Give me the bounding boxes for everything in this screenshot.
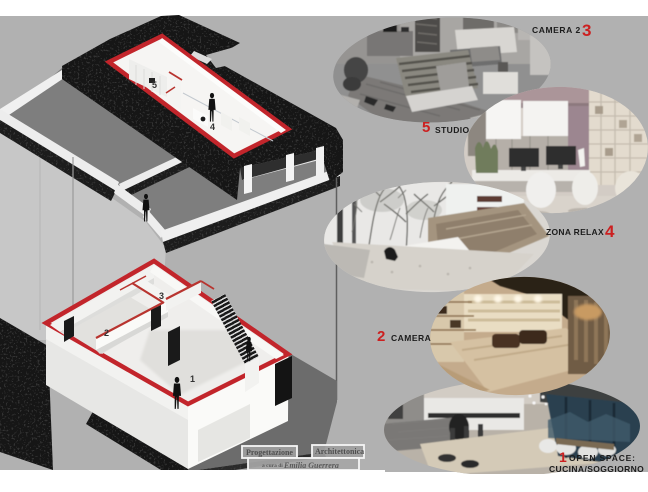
svg-text:4: 4 — [605, 222, 615, 241]
svg-text:CUCINA/SOGGIORNO: CUCINA/SOGGIORNO — [549, 464, 644, 474]
svg-text:Architettonica: Architettonica — [315, 447, 364, 456]
svg-text:1: 1 — [190, 374, 195, 384]
svg-text:3: 3 — [582, 21, 591, 40]
svg-text:5: 5 — [152, 80, 157, 90]
svg-text:2: 2 — [377, 328, 385, 345]
svg-text:4: 4 — [210, 122, 215, 132]
svg-text:CAMERA: CAMERA — [391, 333, 431, 343]
svg-text:ZONA RELAX: ZONA RELAX — [546, 227, 604, 237]
svg-text:3: 3 — [159, 291, 164, 301]
svg-text:Emilia Guerrera: Emilia Guerrera — [283, 461, 339, 470]
svg-text:2: 2 — [104, 328, 109, 338]
svg-text:5: 5 — [422, 119, 430, 136]
svg-text:1: 1 — [559, 449, 567, 465]
svg-text:CAMERA 2: CAMERA 2 — [532, 25, 581, 35]
svg-text:a cura di: a cura di — [262, 463, 283, 469]
svg-text:Progettazione: Progettazione — [246, 448, 293, 457]
svg-text:OPEN SPACE:: OPEN SPACE: — [569, 453, 636, 463]
svg-text:STUDIO: STUDIO — [435, 125, 470, 135]
